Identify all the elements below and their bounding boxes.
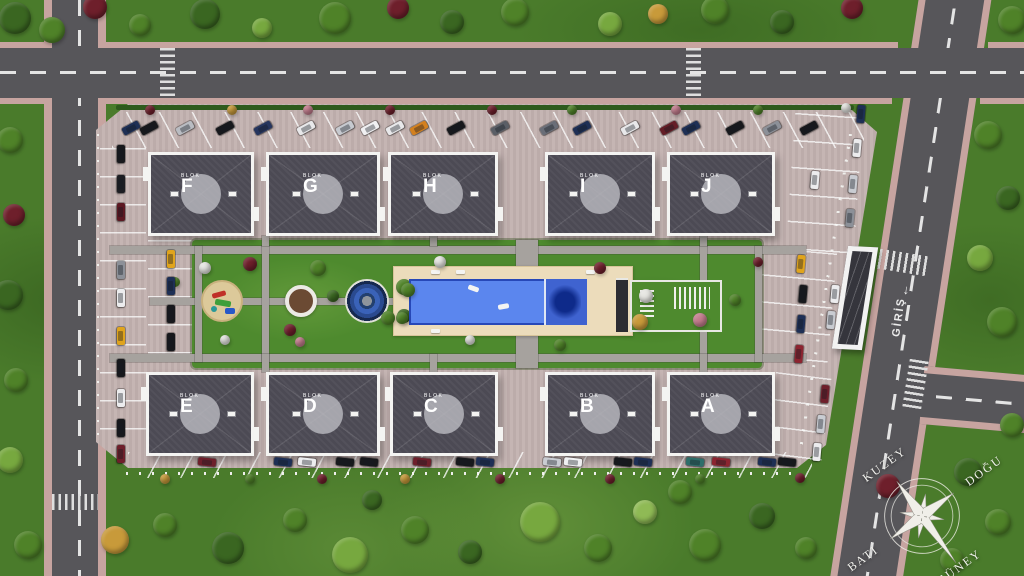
parked-car xyxy=(614,457,633,467)
parked-car xyxy=(360,120,380,136)
parked-car xyxy=(253,120,273,136)
parked-car xyxy=(298,457,317,467)
parked-car xyxy=(856,105,866,124)
parked-car xyxy=(659,120,679,136)
parked-car xyxy=(634,457,653,467)
parked-car xyxy=(139,120,159,136)
parked-car xyxy=(852,139,862,158)
parked-car xyxy=(121,120,141,136)
site-plan-render: GİRİŞ ↓ xyxy=(0,0,1024,576)
parked-car xyxy=(620,120,640,136)
parked-car xyxy=(810,171,820,190)
parked-car xyxy=(572,120,592,136)
parked-car xyxy=(778,457,797,467)
parked-car xyxy=(539,120,559,136)
parked-car xyxy=(117,261,125,279)
parked-car xyxy=(175,120,195,136)
parked-car xyxy=(409,120,429,136)
parked-car xyxy=(296,120,316,136)
parked-car xyxy=(117,175,125,193)
parked-car xyxy=(117,327,125,345)
parked-car xyxy=(712,457,731,467)
parked-car xyxy=(336,457,355,467)
parked-car xyxy=(848,175,858,194)
parked-car xyxy=(215,120,235,136)
parked-car xyxy=(681,120,701,136)
parked-car xyxy=(686,457,705,467)
parked-car xyxy=(385,120,405,136)
parked-car xyxy=(820,385,830,404)
parked-car xyxy=(167,333,175,351)
parked-car xyxy=(845,209,855,228)
parked-car xyxy=(799,120,819,136)
parked-car xyxy=(117,419,125,437)
parked-car xyxy=(117,203,125,221)
parked-car xyxy=(446,120,466,136)
parked-car xyxy=(117,289,125,307)
parked-car xyxy=(762,120,782,136)
parked-car xyxy=(564,457,583,467)
parked-car xyxy=(543,457,562,467)
parked-car xyxy=(117,445,125,463)
parked-car xyxy=(794,345,804,364)
parked-car xyxy=(360,457,379,467)
parked-car xyxy=(167,305,175,323)
parked-car xyxy=(725,120,745,136)
parked-car xyxy=(167,277,175,295)
parked-car xyxy=(274,457,293,467)
parked-car xyxy=(796,315,806,334)
parked-car xyxy=(198,457,217,467)
parked-car xyxy=(758,457,777,467)
parked-car xyxy=(816,415,826,434)
parked-car xyxy=(456,457,475,467)
parked-car xyxy=(812,443,822,462)
parked-car xyxy=(335,120,355,136)
parked-car xyxy=(413,457,432,467)
parked-car xyxy=(476,457,495,467)
parked-car xyxy=(167,250,175,268)
parked-car xyxy=(796,255,806,274)
parked-car xyxy=(490,120,510,136)
parked-car xyxy=(798,285,808,304)
parked-car xyxy=(117,389,125,407)
parked-car xyxy=(117,359,125,377)
parked-car xyxy=(117,145,125,163)
